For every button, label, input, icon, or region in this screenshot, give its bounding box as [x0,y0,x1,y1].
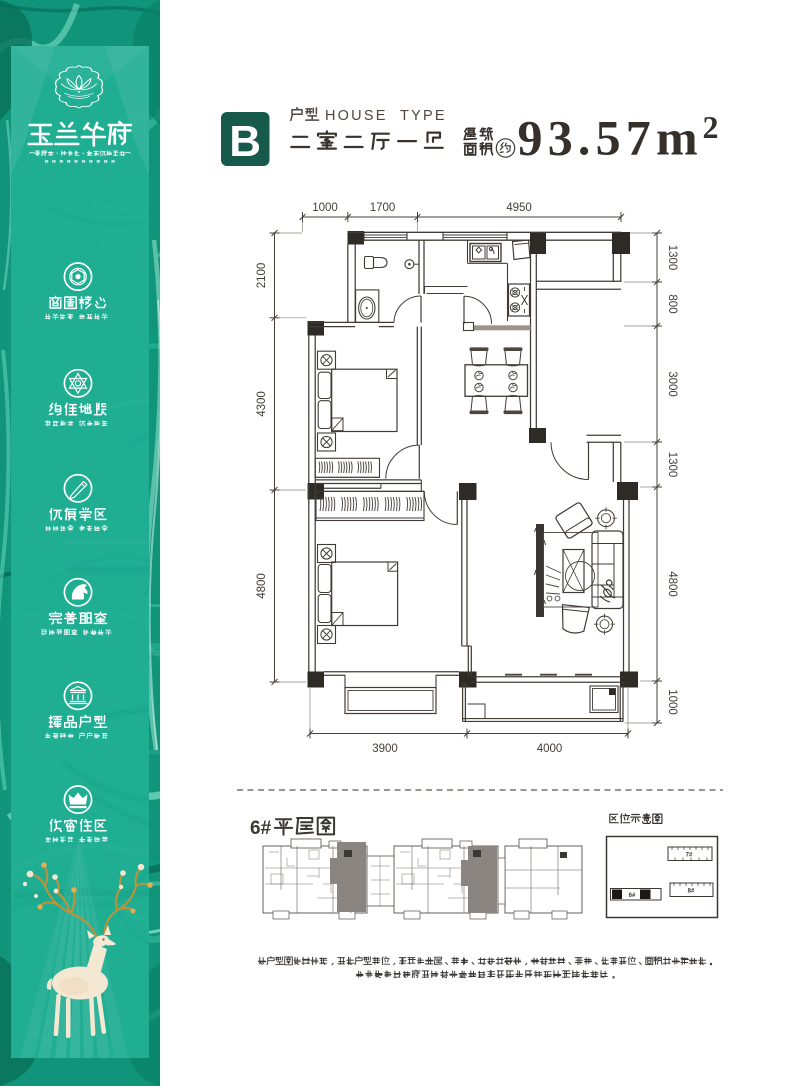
svg-text:4300: 4300 [256,391,268,417]
svg-text:1700: 1700 [370,202,396,214]
svg-text:6#: 6# [250,818,272,839]
svg-text:4800: 4800 [666,571,678,597]
svg-text:1300: 1300 [666,245,678,271]
svg-text:B: B [229,117,261,166]
svg-text:7#: 7# [686,853,693,859]
svg-text:4800: 4800 [256,573,268,599]
svg-text:4950: 4950 [506,202,532,214]
svg-text:1000: 1000 [666,689,678,715]
svg-text:1300: 1300 [666,452,678,478]
svg-text:8#: 8# [688,889,695,895]
svg-text:93.57m: 93.57m [518,110,703,166]
svg-text:HOUSE TYPE: HOUSE TYPE [325,108,447,124]
svg-text:3900: 3900 [372,743,398,755]
svg-text:4000: 4000 [537,743,563,755]
svg-text:6#: 6# [629,893,636,899]
svg-text:1000: 1000 [312,202,338,214]
svg-text:2100: 2100 [256,263,268,289]
svg-text:2: 2 [703,109,719,145]
svg-text:3000: 3000 [666,371,678,397]
svg-text:800: 800 [666,294,678,313]
